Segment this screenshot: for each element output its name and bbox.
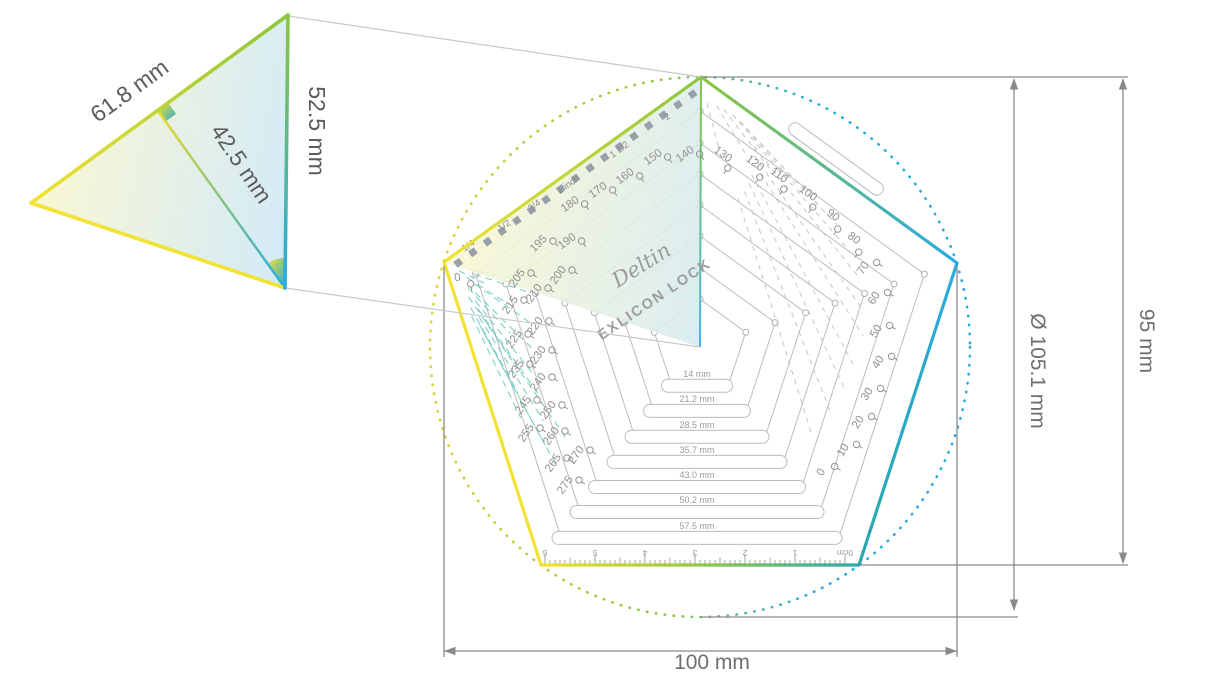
keyhole-icon (779, 185, 788, 194)
keyhole-icon-stem (809, 210, 811, 213)
vertex-hole (862, 291, 868, 297)
keyhole-icon (833, 225, 842, 234)
keyhole-icon (536, 424, 545, 433)
projection-line-apex (288, 16, 701, 77)
keyhole-icon (885, 321, 894, 330)
vertex-hole (743, 329, 749, 335)
keyhole-icon (852, 440, 861, 449)
fan-dashed-line (475, 293, 531, 348)
mm-scale-item: 0 (815, 456, 843, 483)
measuring-slot (589, 481, 806, 494)
keyhole-icon (755, 173, 764, 182)
measuring-slot (607, 455, 787, 468)
mm-scale-value: 0 (815, 467, 829, 479)
sector-center-line (700, 77, 701, 347)
fan-dashed-line (752, 175, 853, 365)
mm-scale-item: 240 (528, 366, 559, 398)
mm-scale-value: 80 (845, 230, 862, 247)
mm-scale-value: 265 (543, 452, 564, 475)
mm-scale-value: 50 (868, 323, 885, 340)
keyhole-icon-stem (565, 407, 568, 409)
height-dimension-label: 95 mm (1135, 309, 1158, 373)
mm-scale-value: 245 (513, 394, 534, 417)
measuring-slot (662, 379, 733, 392)
mm-scale-value: 30 (859, 386, 876, 403)
mm-scale-value: 70 (855, 260, 872, 277)
ruler-number: 1 (792, 548, 797, 558)
mm-scale-item: 20 (850, 406, 879, 435)
mm-scale-item: 130 (706, 144, 738, 176)
dimension-arrowhead (444, 647, 456, 655)
keyhole-icon (575, 476, 584, 485)
keyhole-icon-stem (702, 157, 704, 160)
detail-triangle: 61.8 mm 42.5 mm 52.5 mm (31, 15, 330, 288)
fan-dashed-line (745, 192, 832, 415)
ruler-number: 2 (742, 548, 747, 558)
keyhole-icon (887, 352, 896, 361)
keyhole-icon (558, 401, 567, 410)
keyhole-icon-stem (543, 430, 546, 432)
measuring-slot (570, 506, 824, 519)
mm-scale-value: 220 (525, 315, 546, 338)
mm-scale-value: 20 (850, 414, 867, 431)
keyhole-icon-stem (834, 232, 836, 235)
pentagon-edge-left (444, 262, 541, 565)
keyhole-icon (854, 248, 863, 257)
fan-dashed-line (487, 323, 566, 438)
keyhole-icon-stem (555, 379, 558, 381)
measuring-slot (625, 430, 769, 443)
mm-scale-item: 30 (859, 378, 888, 407)
ruler-number: 3 (692, 548, 697, 558)
mm-scale-item: 270 (566, 439, 597, 471)
mm-scale-value: 0 (453, 272, 461, 285)
keyhole-icon-stem (552, 323, 555, 325)
keyhole-icon (808, 203, 817, 212)
keyhole-icon-stem (879, 264, 882, 266)
keyhole-icon (867, 412, 876, 421)
mm-scale-value: 110 (768, 165, 790, 185)
dimension-arrowhead (946, 647, 958, 655)
mm-scale-item: 40 (870, 346, 899, 375)
measuring-slot (552, 531, 842, 544)
keyhole-icon (467, 280, 474, 287)
mm-scale-item: 100 (791, 183, 823, 215)
width-dimension-label: 100 mm (674, 651, 750, 674)
keyhole-icon (548, 373, 557, 382)
keyhole-icon-stem (859, 446, 862, 448)
vertex-hole (891, 281, 897, 287)
keyhole-icon-stem (471, 287, 472, 291)
fan-dashed-line (754, 156, 861, 308)
mm-scale-value: 215 (500, 294, 521, 317)
ruler-number: 6 (542, 548, 547, 558)
keyhole-icon-stem (568, 433, 571, 435)
keyhole-icon-stem (724, 171, 726, 174)
dimension-arrowhead (1010, 600, 1018, 612)
mm-scale-value: 90 (824, 207, 841, 224)
keyhole-icon (533, 396, 542, 405)
keyhole-icon (561, 427, 570, 436)
mm-scale-item: 70 (855, 252, 884, 281)
vertex-hole (921, 271, 927, 277)
slot-size-label: 35.7 mm (679, 445, 714, 455)
dimension-arrowhead (1119, 78, 1127, 90)
mm-scale-item: 255 (516, 417, 547, 449)
mm-scale-item: 275 (555, 469, 586, 501)
ruler-number: 5 (592, 548, 597, 558)
slot-size-label: 50.2 mm (679, 495, 714, 505)
dimension-arrowhead (1119, 553, 1127, 565)
mm-scale-value: 100 (796, 183, 819, 204)
keyhole-icon-stem (892, 327, 895, 329)
mm-scale-item: 250 (538, 394, 569, 426)
vertex-hole (803, 310, 809, 316)
dimension-arrowhead (1010, 78, 1018, 90)
keyhole-icon-stem (837, 468, 840, 470)
measuring-slot (644, 404, 751, 417)
slot-size-label: 21.2 mm (679, 394, 714, 404)
mm-scale-item: 220 (525, 310, 556, 342)
slot-size-label: 28.5 mm (679, 420, 714, 430)
mm-scale-value: 130 (711, 144, 734, 165)
slot-size-label: 43.0 mm (679, 470, 714, 480)
keyhole-icon (872, 258, 881, 267)
mm-scale-value: 240 (528, 371, 549, 394)
ruler-number: 4 (642, 548, 647, 558)
dimension-arrowheads (444, 78, 1127, 655)
exlicon-pentagon-diagram: 14 mm21.2 mm28.5 mm35.7 mm43.0 mm50.2 mm… (0, 0, 1230, 694)
fan-dashed-line (707, 103, 719, 149)
slot-size-label: 14 mm (683, 369, 711, 379)
vertex-hole (832, 300, 838, 306)
mm-scale-item: 265 (543, 447, 574, 479)
slot-size-label: 57.5 mm (679, 521, 714, 531)
pentagon-edge-top-right (701, 77, 957, 263)
mm-scale-value: 60 (866, 290, 883, 307)
mm-scale-item: 10 (835, 434, 864, 463)
keyhole-icon (876, 384, 885, 393)
diagram-stage: 14 mm21.2 mm28.5 mm35.7 mm43.0 mm50.2 mm… (0, 0, 1230, 694)
cm-ruler-layer: 6543210cm (542, 548, 853, 564)
mm-scale-value: 40 (870, 354, 887, 371)
mm-scale-item: 120 (738, 153, 770, 185)
detail-radius-label: 52.5 mm (304, 86, 330, 175)
keyhole-icon-stem (582, 482, 585, 484)
diameter-dimension-label: Ø 105.1 mm (1026, 313, 1049, 429)
ruler-number: 0cm (837, 548, 853, 558)
mm-scale-value: 270 (566, 444, 587, 467)
fan-dashed-line (738, 198, 812, 434)
keyhole-icon-stem (593, 452, 596, 454)
mm-scale-item: 60 (866, 282, 895, 311)
mm-scale-value: 275 (555, 474, 576, 497)
keyhole-icon-stem (756, 180, 758, 183)
